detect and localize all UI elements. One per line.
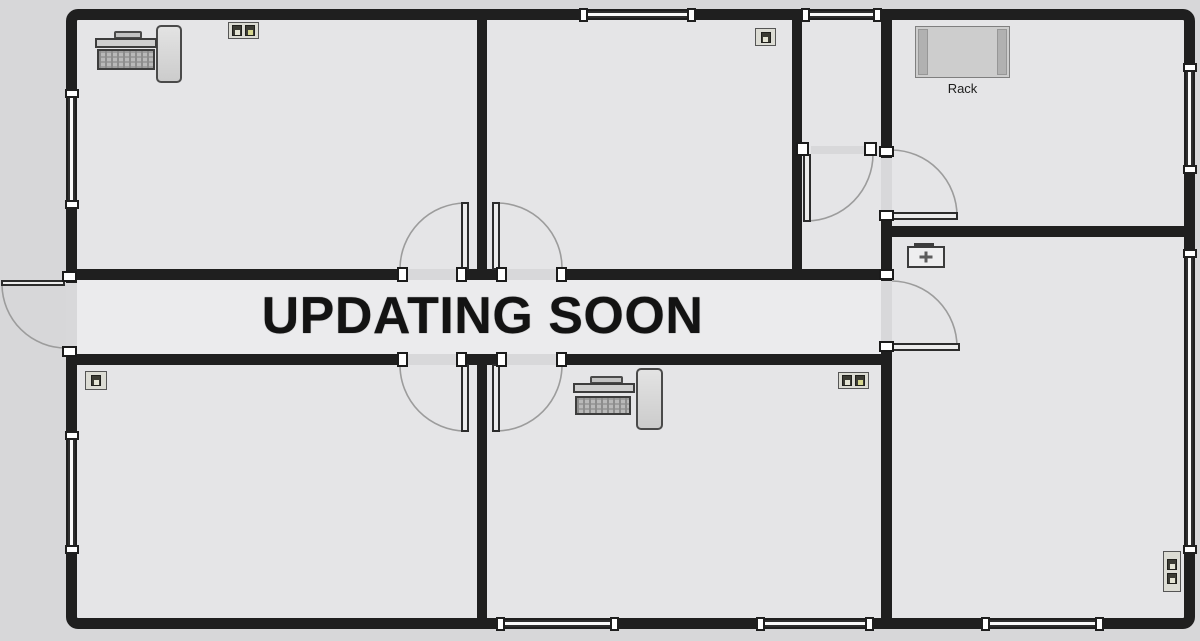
door-frame [864,142,877,156]
door-opening [811,146,867,154]
dual-network-jack-icon [228,22,259,39]
window [810,11,873,18]
window [765,620,865,627]
door-opening [881,158,892,213]
floor-plan: Rack UPDATING SOON [0,0,1200,641]
rack-icon [915,26,1010,78]
door-leaf [892,343,960,351]
wall [477,354,487,618]
door-frame [879,341,894,352]
door-frame [556,267,567,282]
door-leaf [1,280,65,286]
door-frame [397,352,408,367]
door-frame [556,352,567,367]
door-opening [66,283,77,347]
door-frame [796,142,809,156]
door-leaf [892,212,958,220]
single-network-jack-icon [85,371,107,390]
corridor-wall [77,269,892,280]
door-frame [496,267,507,282]
door-leaf [492,364,500,432]
door-frame [456,352,467,367]
updating-soon-watermark: UPDATING SOON [225,286,740,346]
door-opening [500,269,556,280]
dual-network-jack-vertical-icon [1163,551,1181,592]
computer-workstation-icon [95,24,187,108]
door-leaf [492,202,500,270]
door-opening [405,354,461,365]
rack-label: Rack [915,81,1010,96]
fan-blade [925,252,928,263]
door-frame [397,267,408,282]
wall [477,20,487,280]
door-frame [879,269,894,280]
door-opening [500,354,556,365]
jack-port-icon [91,375,101,386]
dual-network-jack-icon [838,372,869,389]
door-leaf [461,364,469,432]
fan-unit-icon [907,246,945,268]
wall [881,343,892,618]
door-leaf [461,202,469,270]
corridor-wall [77,354,892,365]
window [68,440,75,545]
door-frame [62,346,77,357]
door-frame [496,352,507,367]
jack-port-icon [855,375,865,386]
jack-port-icon [1167,559,1177,570]
keyboard-icon [97,49,155,70]
door-frame [62,271,77,282]
jack-port-icon [1167,573,1177,584]
monitor-icon [573,383,635,393]
desk-icon [636,368,663,430]
window [588,11,687,18]
door-leaf [803,154,811,222]
door-swing-arc [2,285,66,348]
jack-port-icon [761,32,771,43]
wall [881,20,892,158]
window [1186,72,1193,165]
door-frame [879,210,894,221]
wall [892,226,1184,237]
jack-port-icon [245,25,255,36]
door-opening [881,281,892,343]
window [1186,258,1193,545]
window [68,98,75,200]
door-frame [879,146,894,157]
single-network-jack-icon [755,28,776,46]
desk-icon [156,25,182,83]
window [990,620,1095,627]
jack-port-icon [232,25,242,36]
monitor-icon [95,38,157,48]
jack-port-icon [842,375,852,386]
keyboard-icon [575,396,631,415]
door-opening [405,269,461,280]
door-frame [456,267,467,282]
computer-workstation-icon [572,368,667,432]
window [505,620,610,627]
rack-rail [997,29,1007,75]
rack-rail [918,29,928,75]
